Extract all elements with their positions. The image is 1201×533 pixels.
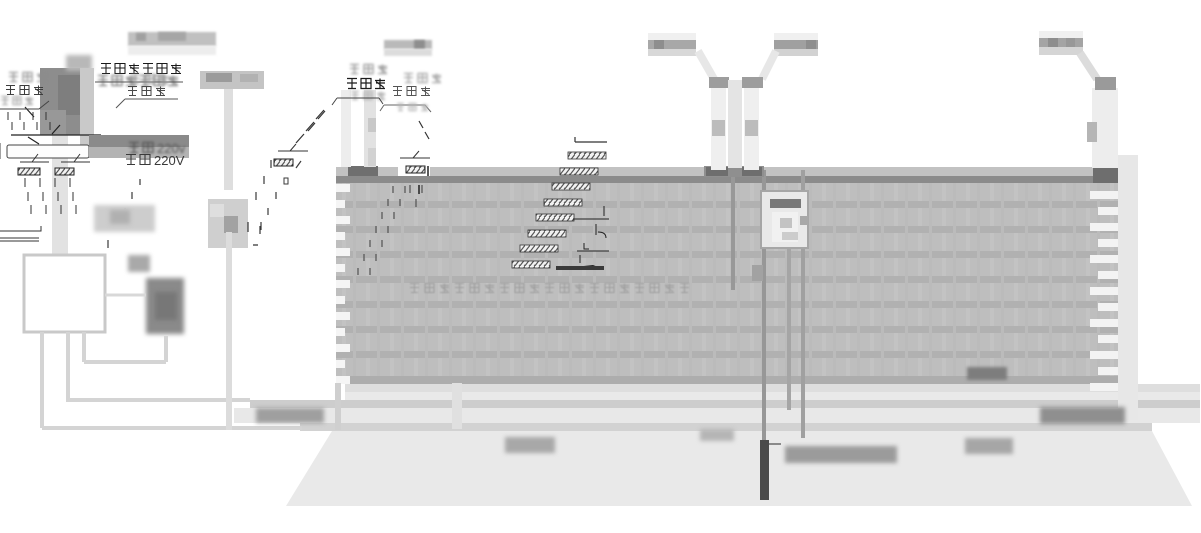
svg-text:220V: 220V xyxy=(154,153,185,168)
